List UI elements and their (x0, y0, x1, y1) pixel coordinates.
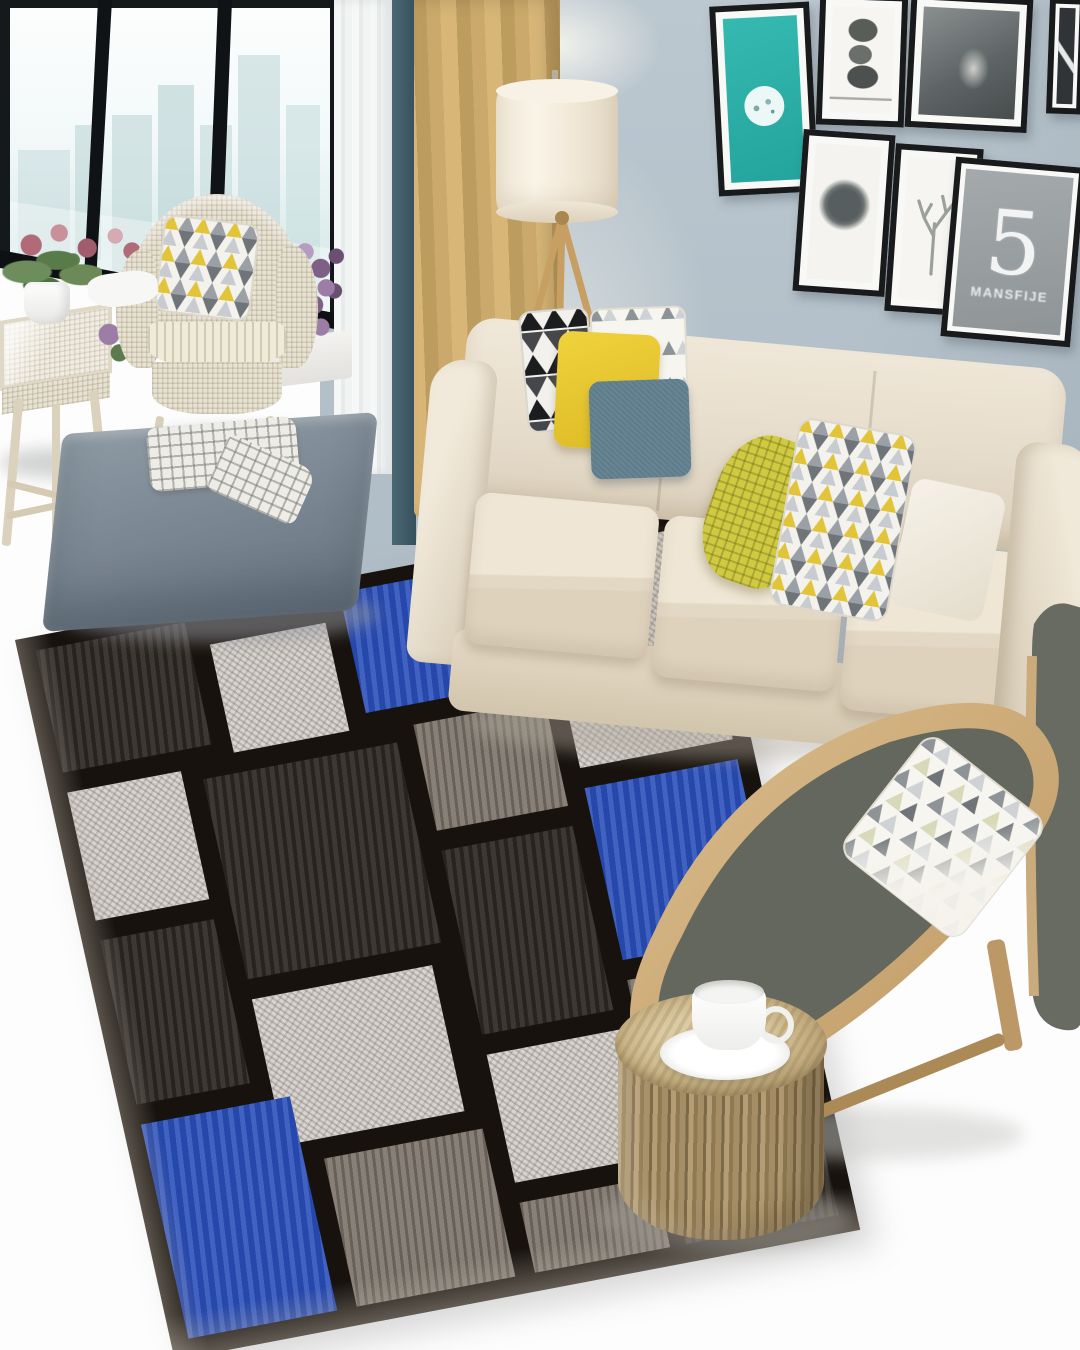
living-room-photo: 5 MANSFIJE (0, 0, 1080, 1350)
corner-poster-art (1056, 8, 1075, 104)
moon-poster-art (806, 143, 881, 283)
table-leg (2, 398, 24, 546)
number-poster-art: 5 MANSFIJE (952, 169, 1073, 336)
floor-lamp-shade (496, 88, 618, 214)
corner-poster-frame (1046, 0, 1080, 115)
teal-curtain (392, 0, 416, 545)
stones-poster-frame (816, 0, 909, 127)
figure-poster-frame (905, 0, 1034, 133)
stones-poster-art (829, 6, 895, 114)
white-plant-pot (24, 282, 70, 324)
number-poster-number: 5 (982, 199, 1045, 287)
moon-poster-frame (792, 129, 895, 297)
teal-poster-illustration (743, 85, 785, 127)
rug-block (203, 743, 441, 980)
wicker-chair-pillow (152, 212, 261, 323)
number-poster-frame: 5 MANSFIJE (940, 157, 1080, 348)
figure-poster-art (918, 7, 1020, 120)
wicker-chair-apron (152, 362, 282, 414)
blue-gray-pillow (588, 378, 691, 479)
sheer-curtain (334, 0, 394, 474)
coffee-cup (692, 988, 766, 1050)
teal-poster-art (723, 15, 805, 183)
rug-block (210, 623, 349, 753)
